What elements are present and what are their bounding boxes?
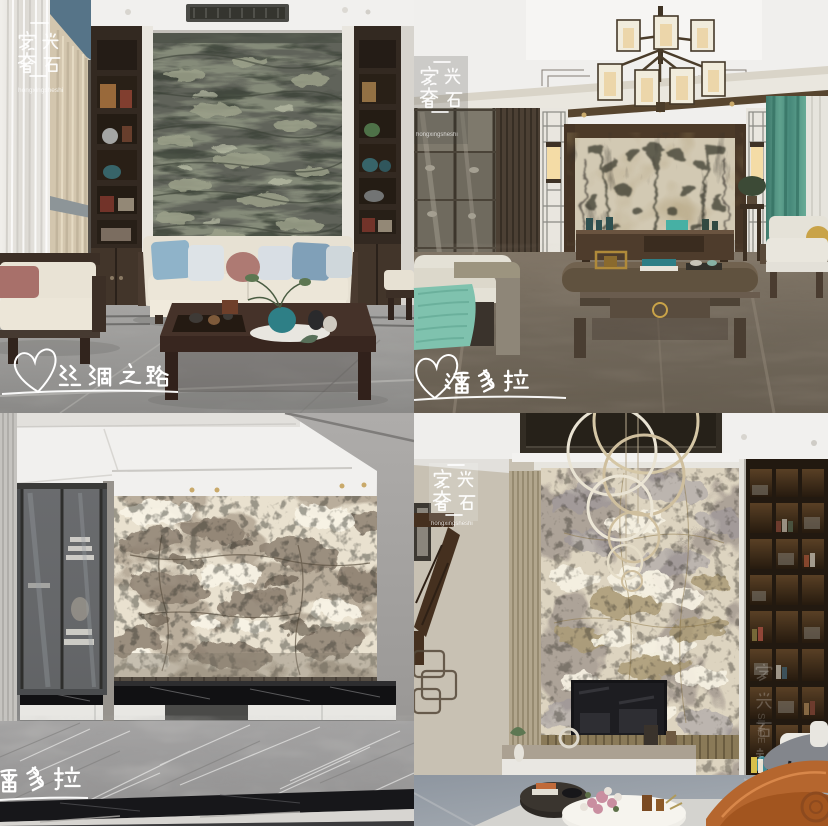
svg-text:hongxingsheshi: hongxingsheshi bbox=[416, 132, 458, 138]
svg-text:hongxingsheshi: hongxingsheshi bbox=[431, 521, 473, 527]
svg-text:hongxingsheshi: hongxingsheshi bbox=[18, 87, 63, 94]
svg-text:SINCE: SINCE bbox=[755, 713, 766, 744]
